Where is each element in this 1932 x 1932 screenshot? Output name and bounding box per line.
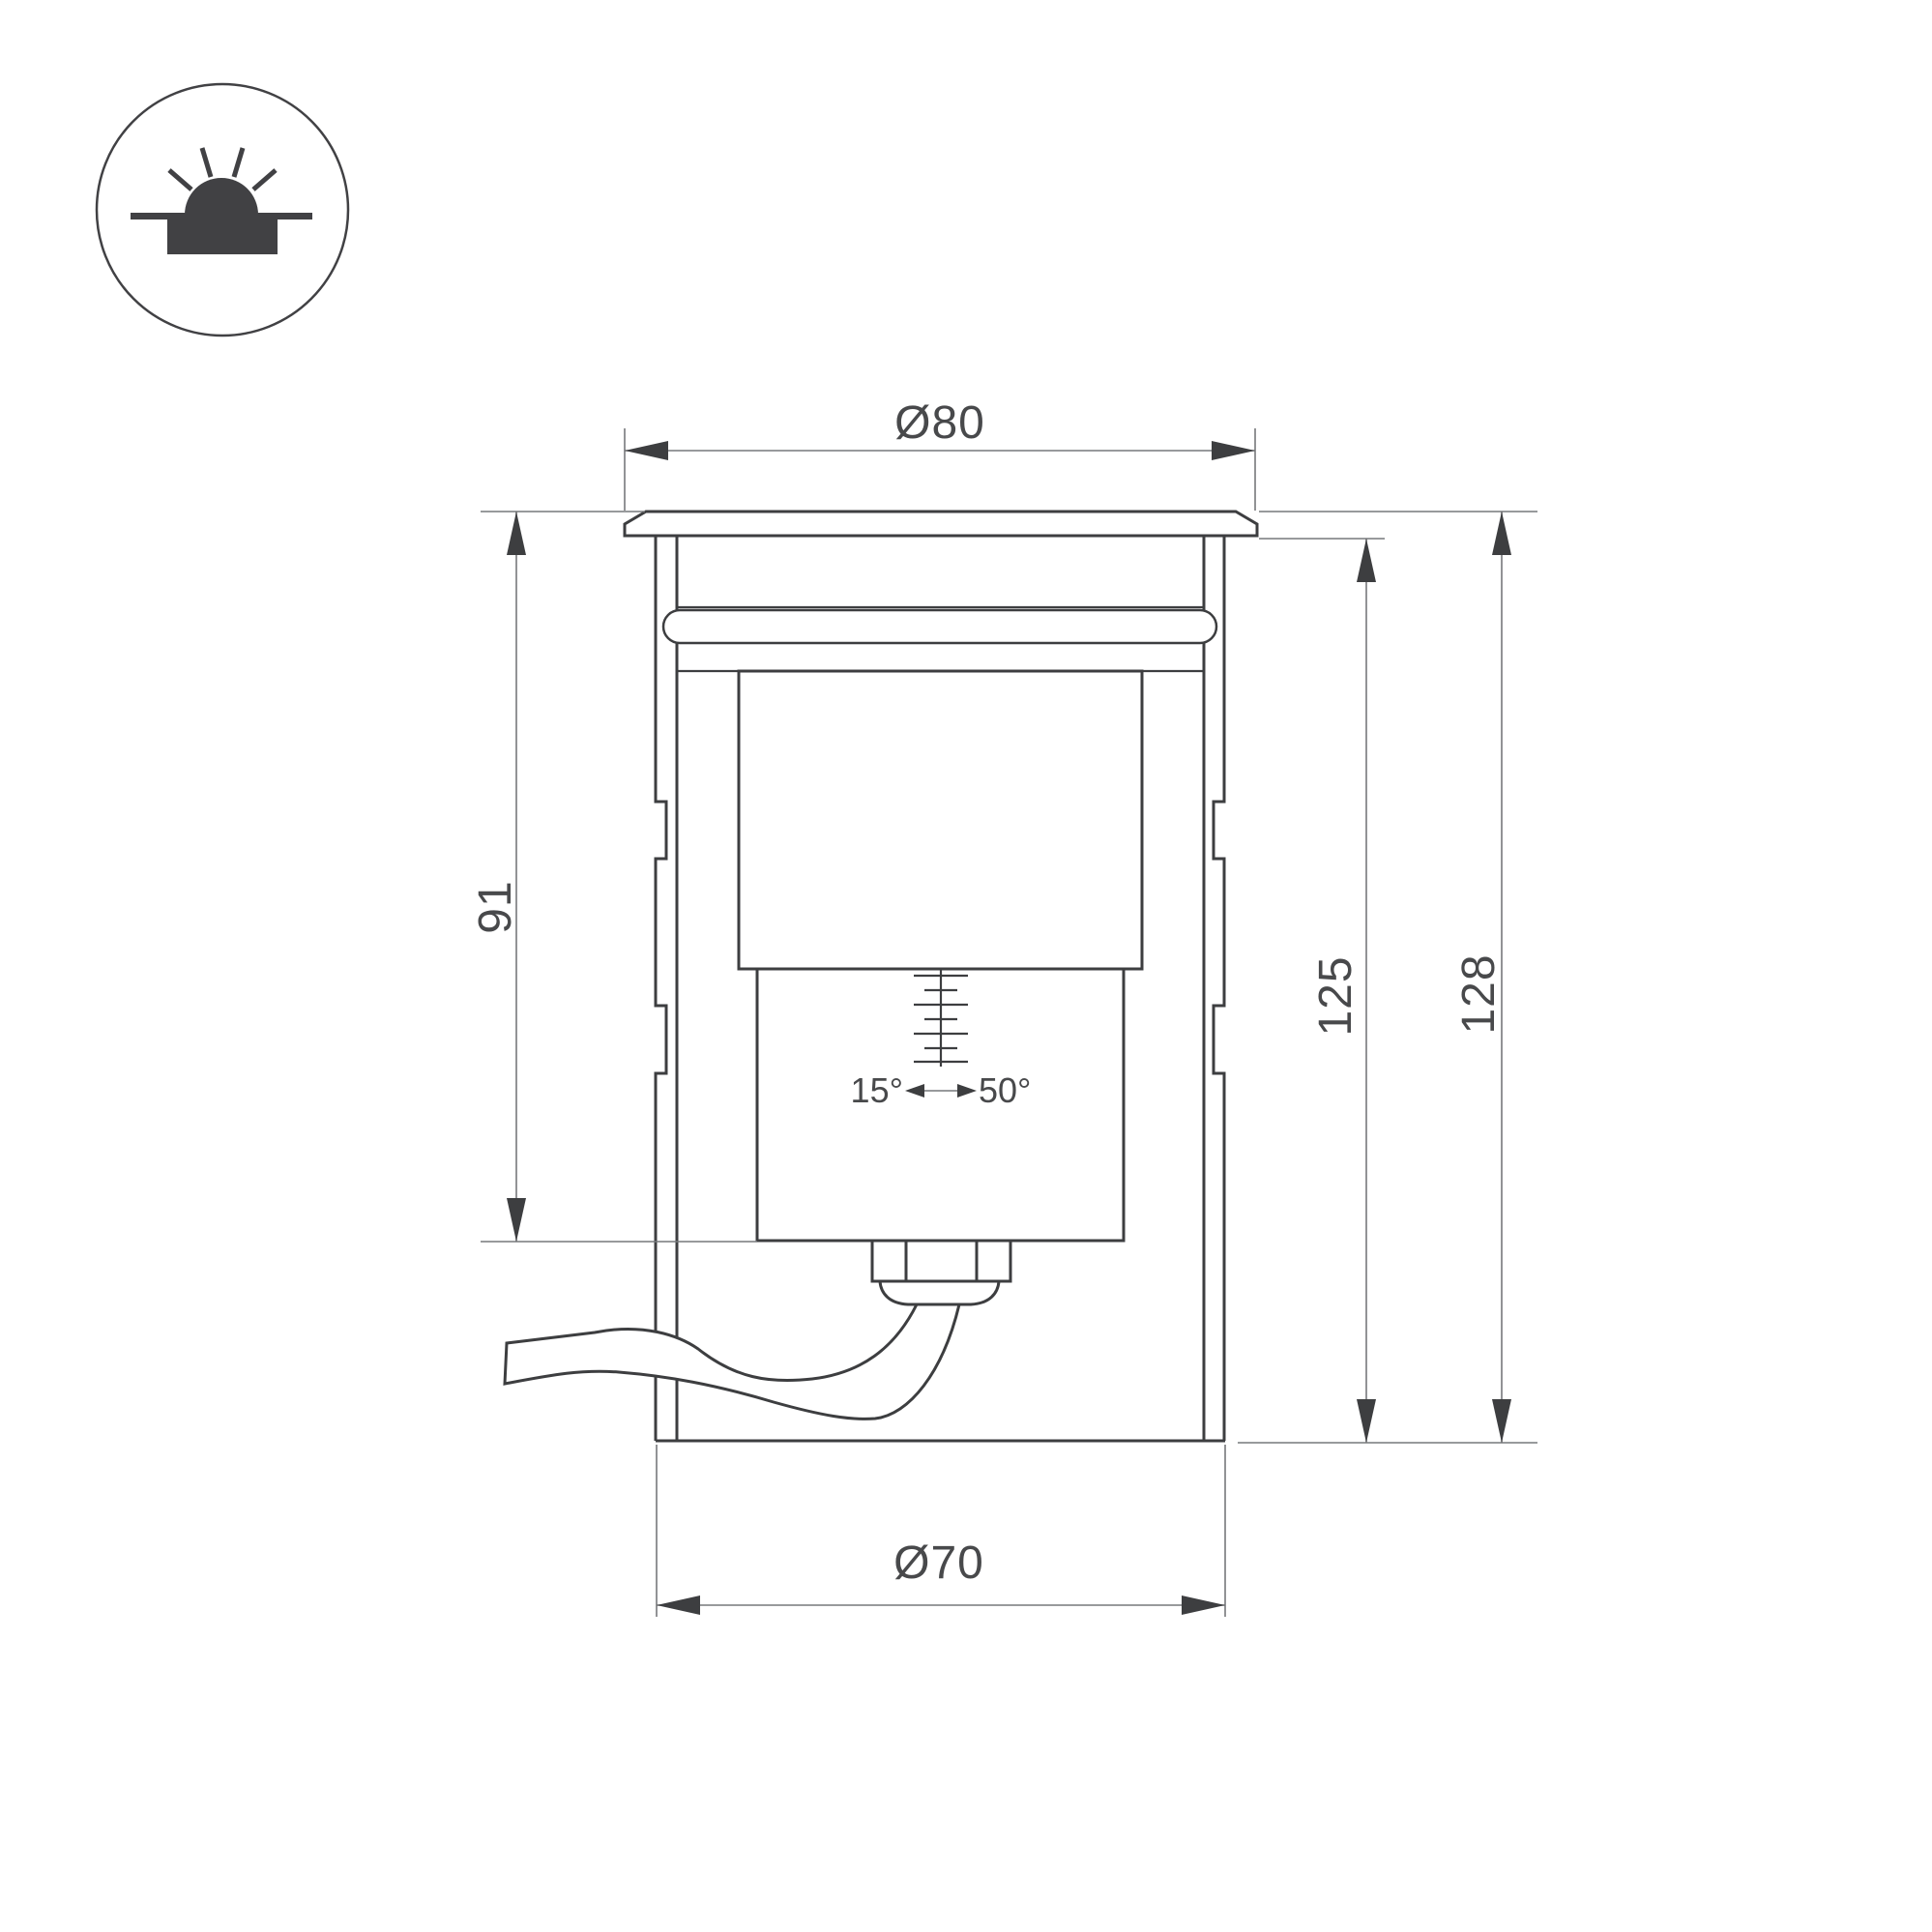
cable-gland-nut	[872, 1241, 1010, 1281]
gasket-ring	[663, 610, 1216, 643]
cable-gland-cap	[880, 1281, 999, 1304]
dim-flange-diameter: Ø80	[625, 397, 1255, 511]
light-ray-icon	[202, 148, 211, 177]
light-ray-icon	[169, 170, 191, 190]
icon-recessed-body	[167, 220, 278, 254]
drawing-page: Ø80 91 125 128 Ø70 1	[0, 0, 1932, 1932]
arrowhead	[657, 1595, 700, 1615]
supply-cable	[505, 1304, 959, 1419]
lamp-module-upper	[739, 671, 1142, 969]
dim-body-diameter: Ø70	[657, 1445, 1225, 1617]
arrowhead	[1357, 1399, 1376, 1443]
icon-ground-line	[131, 213, 312, 220]
arrowhead	[1357, 539, 1376, 582]
arrowhead	[507, 512, 526, 555]
icon-lamp-dome	[185, 178, 258, 215]
dim-housing-height: 125	[1259, 539, 1385, 1443]
light-ray-icon	[234, 148, 243, 177]
housing-wall-right-outer	[1214, 536, 1224, 1441]
housing-wall-left-outer	[656, 536, 666, 1441]
luminaire-cross-section	[505, 512, 1257, 1441]
dim-label-body-diameter: Ø70	[893, 1537, 984, 1589]
dim-label-housing-height: 125	[1310, 955, 1361, 1036]
tilt-angle-min-label: 15°	[851, 1070, 903, 1110]
arrowhead	[625, 441, 668, 460]
arrowhead	[1212, 441, 1255, 460]
dim-label-flange-diameter: Ø80	[894, 397, 985, 449]
dim-label-recess-depth: 91	[470, 880, 521, 933]
light-ray-icon	[253, 170, 276, 190]
flange-outline	[625, 512, 1257, 536]
arrowhead	[1182, 1595, 1225, 1615]
tilt-angle-max-label: 50°	[979, 1070, 1031, 1110]
technical-drawing: Ø80 91 125 128 Ø70 1	[0, 0, 1932, 1932]
dim-overall-height: 128	[1238, 512, 1537, 1443]
arrowhead	[1492, 1399, 1511, 1443]
arrowhead	[1492, 512, 1511, 555]
dim-label-overall-height: 128	[1453, 953, 1505, 1034]
recessed-ground-luminaire-icon	[97, 84, 348, 336]
arrowhead	[507, 1198, 526, 1242]
